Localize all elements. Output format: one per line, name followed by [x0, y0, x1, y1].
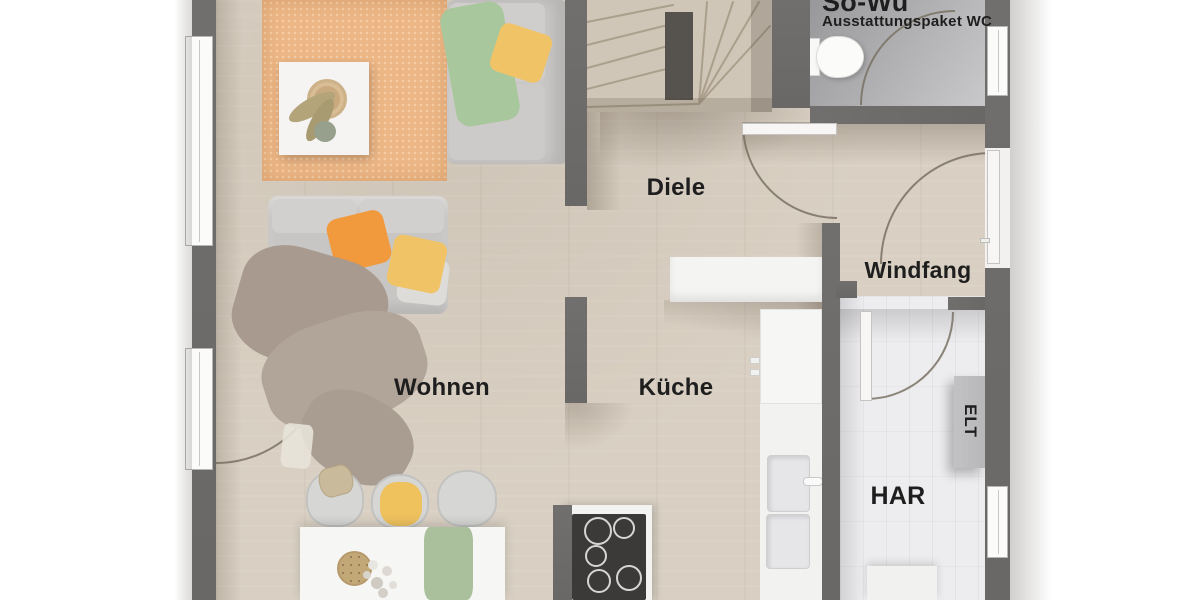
stool	[280, 423, 314, 470]
dining-table	[300, 527, 505, 600]
sink-basin-2	[766, 514, 810, 569]
faucet	[803, 477, 823, 486]
har-top-wall	[948, 297, 985, 310]
burner-1	[584, 517, 612, 545]
door-handle	[980, 238, 990, 243]
floor-shadow	[565, 403, 635, 449]
wc-window	[987, 26, 1008, 96]
table-runner	[424, 527, 473, 600]
elt-cabinet	[954, 376, 986, 468]
toilet	[816, 36, 864, 78]
cabinet-handle	[750, 357, 760, 364]
wc-bottom-wall	[810, 106, 985, 124]
staircase	[587, 0, 772, 112]
fridge-cabinet	[760, 309, 822, 404]
burner-2	[613, 517, 635, 539]
entry-door	[987, 150, 1000, 264]
decor-flowers	[368, 560, 378, 570]
windfang-pier	[836, 281, 857, 298]
kitchen-stub-wall	[553, 505, 572, 600]
floor-plan: Wohnen Küche Diele Windfang HAR ELT Sö-W…	[0, 0, 1200, 600]
har-door-leaf	[860, 311, 872, 401]
diele-door-leaf	[742, 123, 837, 135]
chair-seat-yellow	[380, 482, 422, 526]
burner-3	[585, 545, 607, 567]
burner-4	[587, 569, 611, 593]
decor-bowl	[337, 551, 372, 586]
wc-left-wall	[772, 0, 810, 108]
stair-rail	[665, 12, 693, 100]
kitchen-counter	[670, 257, 822, 302]
kitchen-divider-wall	[565, 297, 587, 403]
stair-wall	[565, 0, 587, 206]
pillow-yellow-left	[385, 233, 449, 295]
decor-vase	[314, 121, 336, 142]
dining-chair-3	[437, 470, 497, 527]
plan-shadow-right	[1010, 0, 1052, 600]
har-window	[987, 486, 1008, 558]
burner-5	[616, 565, 642, 591]
har-appliance	[867, 566, 937, 600]
plan-shadow-left	[174, 0, 192, 600]
kitchen-right-wall	[822, 223, 840, 600]
cabinet-handle	[750, 369, 760, 376]
